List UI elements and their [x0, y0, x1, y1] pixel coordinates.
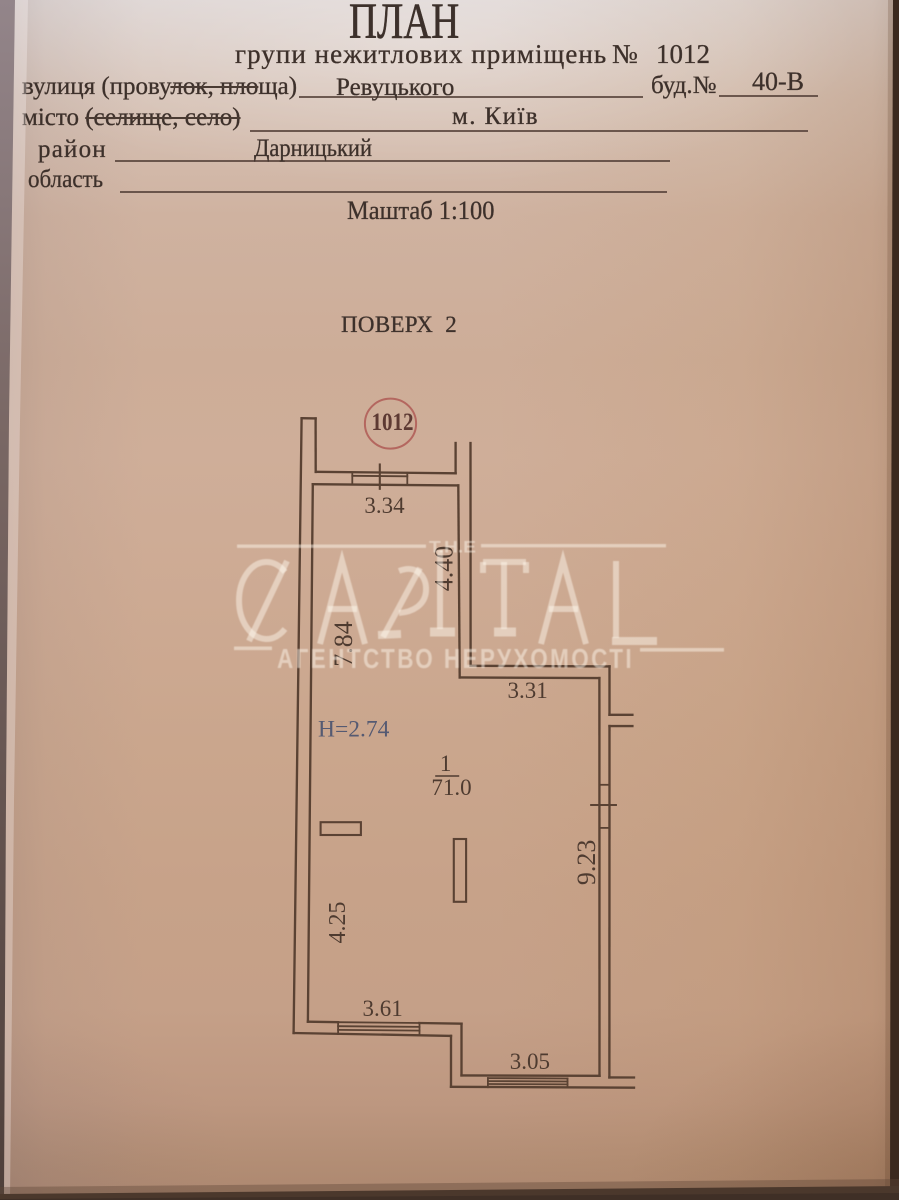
svg-text:T.H.E: T.H.E — [429, 538, 476, 557]
svg-text:АГЕНТСТВО НЕРУХОМОСТІ: АГЕНТСТВО НЕРУХОМОСТІ — [277, 643, 634, 674]
